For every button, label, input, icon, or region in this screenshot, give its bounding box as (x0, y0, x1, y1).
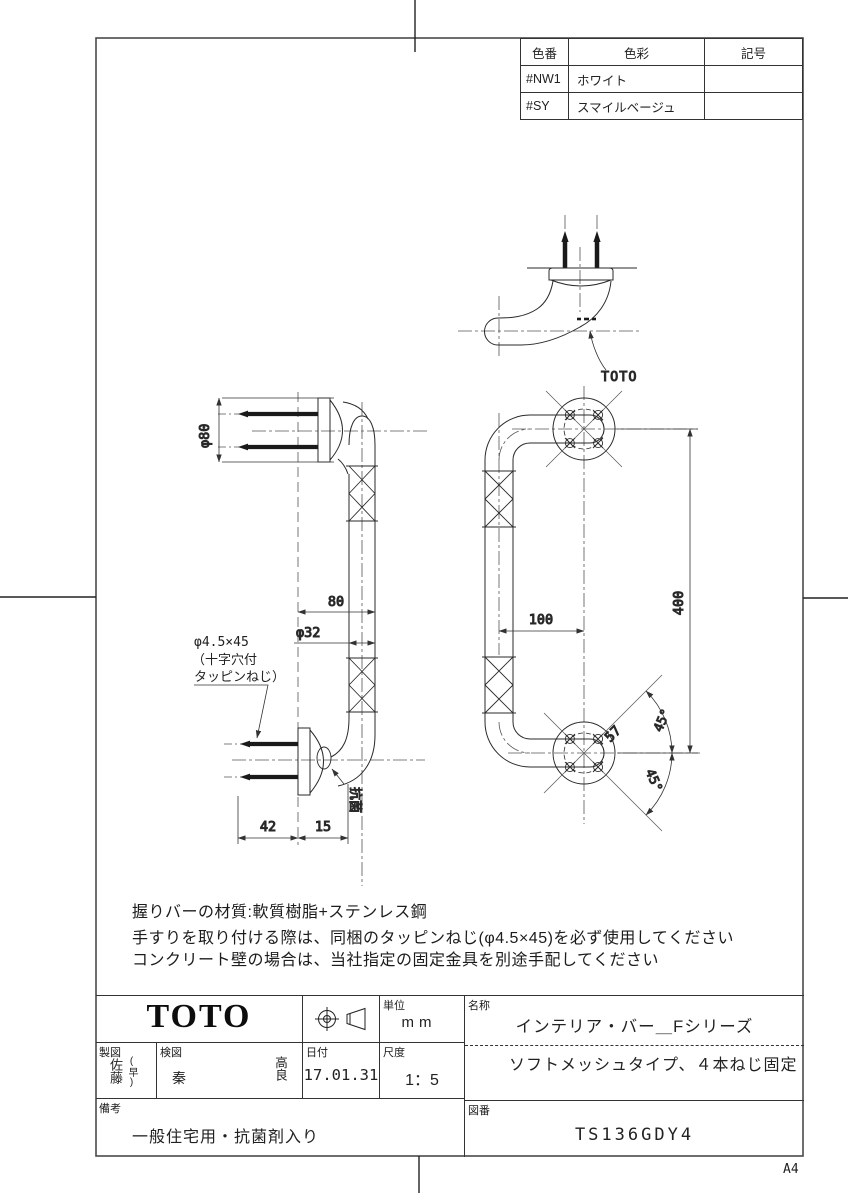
color-symbol (705, 93, 803, 120)
name-cell: 名称 インテリア・バー＿Fシリーズ (465, 996, 804, 1046)
screw-note-line2: （十字穴付 (192, 653, 257, 668)
bar-outline-front (485, 415, 604, 767)
screw-note-line3: タッピンねじ） (194, 670, 285, 685)
color-symbol (705, 66, 803, 93)
drawing-sheet: { "page": { "size_label": "A4" }, "color… (0, 0, 848, 1200)
front-view: 100 400 57 45° 45° (482, 386, 700, 831)
checker-name-2: 高良 (271, 1056, 290, 1081)
top-flange-disc (318, 398, 330, 462)
screw-note-line1: φ4.5×45 (194, 635, 249, 650)
screw-note: φ4.5×45 （十字穴付 タッピンねじ） (192, 635, 285, 685)
color-code: #NW1 (521, 66, 569, 93)
unit-label: 単位 (383, 997, 405, 1013)
screws-side-top (238, 411, 318, 451)
toto-label: TOTO (601, 369, 638, 385)
antibacterial-leader (332, 769, 344, 784)
dim-80-label: 80 (328, 594, 344, 610)
dim-15-label: 15 (315, 819, 331, 835)
top-view: TOTO (458, 215, 642, 385)
screws-side-bottom (240, 741, 298, 781)
date-cell: 日付 17.01.31 (303, 1043, 380, 1099)
remarks-cell: 備考 一般住宅用・抗菌剤入り (96, 1099, 465, 1157)
antibacterial-mark (317, 747, 331, 769)
toto-logo: TOTO (96, 998, 302, 1036)
unit-cell: 単位 mm (380, 996, 465, 1043)
bottom-flange-disc (298, 728, 310, 795)
note-screws: 手すりを取り付ける際は、同梱のタッピンねじ(φ4.5×45)を必ず使用してくださ… (132, 928, 734, 951)
title-block: TOTO 単位 mm 製図 佐藤 (早) 検図 秦 高良 日付 17.01.31… (96, 995, 804, 1156)
note-material: 握りバーの材質:軟質樹脂+ステンレス鋼 (132, 902, 734, 925)
front-view-centerlines (499, 386, 700, 824)
dim-400-label: 400 (671, 591, 687, 615)
logo-cell: TOTO (96, 996, 303, 1043)
projection-symbol-cell (303, 996, 380, 1043)
dim-57-label: 57 (602, 723, 625, 746)
drafter-name: 佐藤 (106, 1058, 125, 1084)
checker-cell: 検図 秦 高良 (157, 1043, 303, 1099)
scale-label: 尺度 (383, 1044, 405, 1060)
screws-top-view (561, 231, 600, 242)
checker-label: 検図 (160, 1044, 182, 1060)
dim-phi80-label: φ80 (197, 424, 213, 448)
dim-100-label: 100 (529, 612, 553, 628)
antibacterial-label: 抗菌 (347, 787, 362, 813)
sheet-size-label: A4 (783, 1162, 799, 1177)
dim-42-label: 42 (260, 819, 276, 835)
color-name: ホワイト (569, 66, 705, 93)
color-symbol-header: 記号 (705, 39, 803, 66)
color-name-header: 色彩 (569, 39, 705, 66)
name-label: 名称 (468, 997, 490, 1013)
side-view: φ80 80 φ32 φ4.5×45 （十字穴付 タッピンねじ） 抗菌 42 1… (192, 392, 428, 886)
color-code-header: 色番 (521, 39, 569, 66)
number-label: 図番 (468, 1102, 490, 1118)
note-concrete: コンクリート壁の場合は、当社指定の固定金具を別途手配してください (132, 950, 734, 973)
dim-45-top-label: 45° (651, 707, 674, 734)
toto-leader (590, 331, 606, 370)
table-row: #NW1 ホワイト (521, 66, 803, 93)
number-cell: 図番 TS136GDY4 (465, 1101, 804, 1157)
table-row: #SY スマイルベージュ (521, 93, 803, 120)
side-view-centerlines (218, 392, 428, 886)
date-label: 日付 (306, 1044, 328, 1060)
drafter-suffix: (早) (124, 1056, 139, 1088)
scale-cell: 尺度 1：5 (380, 1043, 465, 1099)
color-name: スマイルベージュ (569, 93, 705, 120)
color-code: #SY (521, 93, 569, 120)
dim-phi32-label: φ32 (296, 625, 320, 641)
drafter-cell: 製図 佐藤 (早) (96, 1043, 157, 1099)
product-type: ソフトメッシュタイプ、４本ねじ固定 (509, 1055, 801, 1077)
dim-45-bottom-label: 45° (642, 767, 665, 794)
type-cell: ソフトメッシュタイプ、４本ねじ固定 (465, 1046, 804, 1101)
material-notes: 握りバーの材質:軟質樹脂+ステンレス鋼 手すりを取り付ける際は、同梱のタッピンね… (132, 902, 734, 973)
remarks-value: 一般住宅用・抗菌剤入り (132, 1123, 319, 1147)
scale-value: 1：5 (380, 1066, 464, 1090)
dim-phi80 (219, 398, 334, 462)
checker-name-1: 秦 (172, 1068, 186, 1088)
third-angle-projection-icon (303, 996, 380, 1042)
date-value: 17.01.31 (303, 1066, 379, 1084)
drawing-number: TS136GDY4 (465, 1125, 804, 1145)
product-name: インテリア・バー＿Fシリーズ (465, 1013, 804, 1037)
color-table: 色番 色彩 記号 #NW1 ホワイト #SY スマイルベージュ (520, 38, 803, 120)
dim-42-15 (238, 784, 348, 844)
unit-value: mm (380, 1014, 458, 1031)
screw-note-leader (194, 685, 268, 738)
color-table-header: 色番 色彩 記号 (521, 39, 803, 66)
remarks-label: 備考 (99, 1100, 121, 1116)
